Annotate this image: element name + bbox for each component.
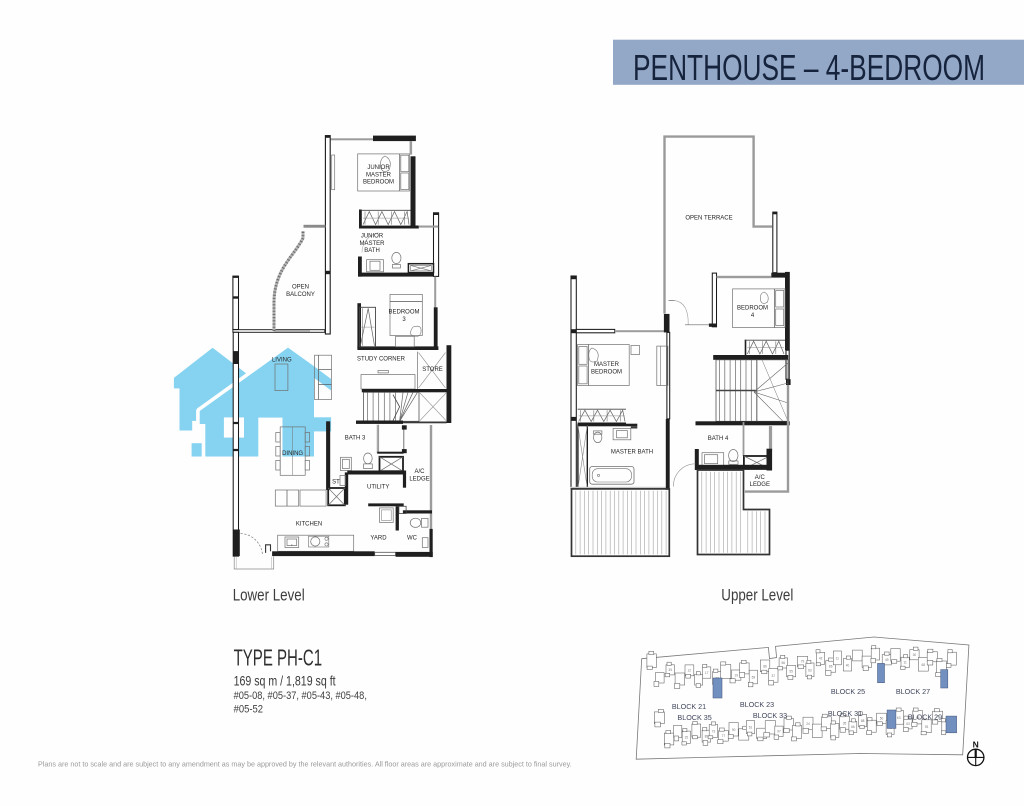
svg-text:BLOCK 21: BLOCK 21	[672, 702, 706, 711]
svg-text:BEDROOM: BEDROOM	[737, 306, 768, 312]
svg-text:BEDROOM: BEDROOM	[363, 180, 394, 186]
svg-text:Plans are not to scale and are: Plans are not to scale and are subject t…	[38, 760, 572, 769]
svg-text:77: 77	[722, 734, 726, 738]
svg-text:24: 24	[806, 722, 810, 726]
svg-text:56: 56	[782, 661, 786, 665]
svg-text:ST: ST	[332, 480, 340, 486]
svg-text:A/C: A/C	[414, 469, 425, 475]
svg-text:LEDGE: LEDGE	[409, 476, 429, 482]
svg-text:YARD: YARD	[370, 536, 387, 542]
svg-text:TYPE PH-C1: TYPE PH-C1	[234, 645, 323, 671]
svg-text:MASTER: MASTER	[359, 241, 385, 247]
svg-text:50: 50	[880, 717, 884, 721]
svg-text:68: 68	[922, 663, 926, 667]
svg-text:61: 61	[749, 726, 753, 730]
svg-text:19: 19	[734, 673, 738, 677]
svg-text:#05-52: #05-52	[234, 703, 263, 715]
svg-text:63: 63	[808, 669, 812, 673]
svg-text:49: 49	[885, 658, 889, 662]
svg-text:BEDROOM: BEDROOM	[388, 310, 419, 316]
svg-text:MASTER BATH: MASTER BATH	[611, 450, 653, 456]
svg-text:BATH 4: BATH 4	[708, 436, 729, 442]
svg-text:35: 35	[843, 721, 847, 725]
svg-text:15: 15	[685, 736, 689, 740]
svg-text:17: 17	[705, 671, 709, 675]
svg-text:BLOCK 23: BLOCK 23	[740, 700, 774, 709]
svg-text:73: 73	[712, 729, 716, 733]
svg-text:BLOCK 33: BLOCK 33	[753, 711, 787, 720]
svg-text:N: N	[973, 740, 979, 750]
svg-text:BLOCK 31: BLOCK 31	[828, 709, 862, 718]
svg-text:11: 11	[903, 661, 907, 665]
svg-text:BALCONY: BALCONY	[286, 292, 315, 298]
svg-text:59: 59	[752, 676, 756, 680]
svg-text:12: 12	[688, 669, 692, 673]
svg-text:A/C: A/C	[755, 475, 766, 481]
svg-text:PENTHOUSE – 4-BEDROOM: PENTHOUSE – 4-BEDROOM	[633, 47, 985, 88]
svg-text:63: 63	[906, 722, 910, 726]
svg-text:42: 42	[819, 657, 823, 661]
svg-text:UTILITY: UTILITY	[367, 485, 389, 491]
svg-text:BLOCK 29: BLOCK 29	[908, 713, 942, 722]
svg-text:BATH: BATH	[364, 248, 380, 254]
svg-text:KITCHEN: KITCHEN	[296, 522, 322, 528]
svg-text:BLOCK 35: BLOCK 35	[677, 713, 711, 722]
svg-text:63: 63	[897, 716, 901, 720]
svg-text:WC: WC	[407, 536, 418, 542]
svg-text:86: 86	[829, 665, 833, 669]
svg-text:JUNIOR: JUNIOR	[361, 234, 384, 240]
svg-text:BEDROOM: BEDROOM	[591, 369, 622, 375]
svg-text:JUNIOR: JUNIOR	[367, 165, 390, 171]
svg-text:LIVING: LIVING	[272, 358, 292, 364]
svg-text:#05-08, #05-37, #05-43, #05-48: #05-08, #05-37, #05-43, #05-48,	[234, 690, 367, 702]
svg-text:93: 93	[925, 725, 929, 729]
svg-text:40: 40	[846, 663, 850, 667]
svg-text:37: 37	[772, 674, 776, 678]
svg-text:35: 35	[668, 668, 672, 672]
svg-text:30: 30	[913, 653, 917, 657]
svg-text:OPEN: OPEN	[292, 285, 309, 291]
svg-text:88: 88	[861, 719, 865, 723]
svg-text:OPEN TERRACE: OPEN TERRACE	[685, 216, 732, 222]
svg-text:STUDY CORNER: STUDY CORNER	[357, 357, 406, 363]
svg-text:Lower Level: Lower Level	[233, 587, 305, 605]
svg-text:MASTER: MASTER	[594, 362, 620, 368]
svg-text:MASTER: MASTER	[366, 172, 392, 178]
svg-text:BLOCK 27: BLOCK 27	[896, 687, 930, 696]
svg-text:Upper Level: Upper Level	[721, 587, 793, 605]
svg-text:11: 11	[836, 657, 840, 661]
svg-text:DINING: DINING	[282, 451, 303, 457]
svg-text:STORE: STORE	[422, 367, 443, 373]
svg-text:169 sq m / 1,819 sq ft: 169 sq m / 1,819 sq ft	[234, 672, 336, 688]
svg-text:86: 86	[763, 664, 767, 668]
svg-text:66: 66	[851, 725, 855, 729]
svg-text:BATH 3: BATH 3	[345, 436, 366, 442]
svg-text:55: 55	[789, 670, 793, 674]
svg-text:79: 79	[801, 660, 805, 664]
svg-text:BLOCK 25: BLOCK 25	[831, 687, 865, 696]
svg-text:90: 90	[732, 728, 736, 732]
svg-text:97: 97	[777, 730, 781, 734]
svg-text:LEDGE: LEDGE	[750, 482, 770, 488]
